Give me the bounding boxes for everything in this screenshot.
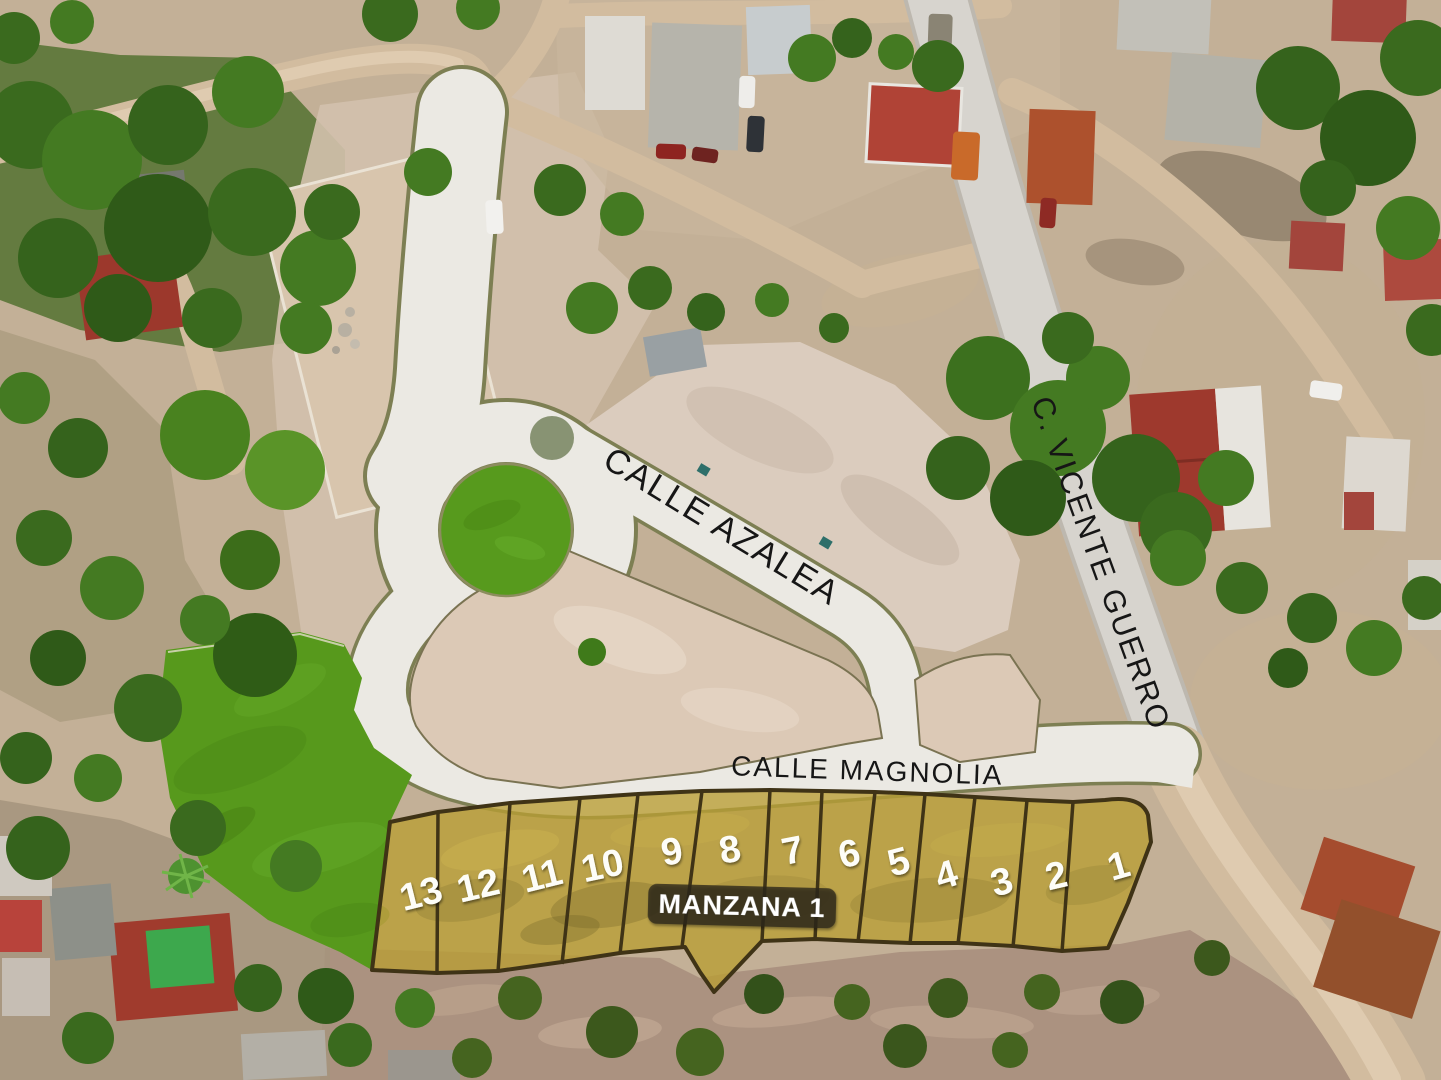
aerial-lot-map: CALLE AZALEA CALLE MAGNOLIA C. VICENTE G… xyxy=(0,0,1441,1080)
truck xyxy=(951,131,980,180)
building xyxy=(388,1050,460,1080)
house xyxy=(1289,221,1345,272)
lot-number-10: 10 xyxy=(577,841,627,891)
building xyxy=(1117,0,1212,54)
manzana-badge-label: MANZANA 1 xyxy=(658,889,826,923)
aerial-photo: CALLE AZALEA CALLE MAGNOLIA C. VICENTE G… xyxy=(0,0,1441,1080)
car xyxy=(746,116,765,153)
building xyxy=(648,22,742,150)
building xyxy=(2,958,50,1016)
car xyxy=(1039,197,1057,228)
car xyxy=(656,143,687,159)
house xyxy=(1344,492,1374,530)
bush xyxy=(578,638,606,666)
building xyxy=(1164,52,1267,148)
house xyxy=(1026,109,1095,205)
house-roof-patch xyxy=(146,925,215,988)
tree xyxy=(530,416,574,460)
manzana-badge: MANZANA 1 xyxy=(648,884,837,929)
building xyxy=(49,883,117,960)
building xyxy=(0,900,42,952)
car xyxy=(485,200,504,235)
building xyxy=(241,1030,327,1080)
building xyxy=(585,16,645,110)
car xyxy=(738,76,755,109)
house xyxy=(866,84,962,167)
